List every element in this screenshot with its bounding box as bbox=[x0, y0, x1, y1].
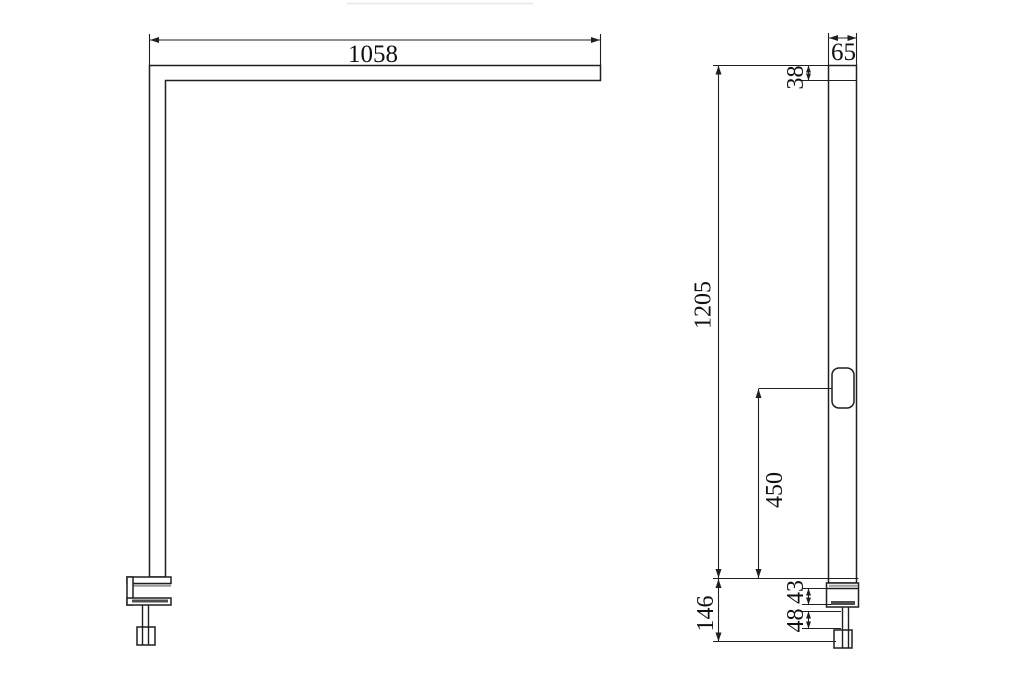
dim-450-arrow-top bbox=[756, 389, 762, 398]
dim-1058-text: 1058 bbox=[348, 41, 398, 68]
dim-146-arrow-bottom bbox=[716, 633, 722, 642]
clamp-knob-front bbox=[137, 627, 155, 645]
dim-43-text: 43 bbox=[783, 580, 809, 604]
clamp-pad-front bbox=[132, 600, 168, 603]
dim-146-arrow-top bbox=[716, 579, 722, 588]
clamp-pad-side bbox=[831, 601, 855, 605]
side-view: 65 38 1205 450 bbox=[691, 33, 859, 648]
control-switch bbox=[832, 368, 854, 408]
clamp-side bbox=[827, 583, 859, 648]
dim-450-arrow-bottom bbox=[756, 569, 762, 578]
dim-1205-text: 1205 bbox=[691, 281, 717, 329]
technical-drawing: 1058 65 bbox=[0, 0, 1024, 681]
dim-65-text: 65 bbox=[831, 39, 856, 66]
clamp-screw-front bbox=[143, 605, 149, 627]
dim-1058-arrow-right bbox=[591, 37, 600, 43]
dim-1058-arrow-left bbox=[150, 37, 159, 43]
clamp-screw-side bbox=[843, 607, 849, 630]
dimension-arm-length: 1058 bbox=[150, 34, 601, 68]
dim-146-text: 146 bbox=[693, 596, 719, 632]
dim-1205-arrow-bottom bbox=[716, 569, 722, 578]
dimension-head-width: 65 bbox=[829, 33, 857, 66]
pole-side-outline bbox=[829, 66, 857, 584]
dim-1205-arrow-top bbox=[716, 66, 722, 75]
dimension-switch-to-desk: 450 bbox=[756, 389, 833, 579]
lamp-front-outline bbox=[150, 66, 601, 578]
dim-450-text: 450 bbox=[762, 472, 788, 508]
dim-38-text: 38 bbox=[783, 66, 809, 90]
dimension-screw-length: 48 bbox=[783, 609, 841, 633]
clamp-front bbox=[127, 577, 171, 645]
front-view: 1058 bbox=[127, 34, 601, 645]
dim-48-text: 48 bbox=[783, 609, 809, 633]
dimension-clamp-opening: 43 bbox=[783, 580, 831, 605]
